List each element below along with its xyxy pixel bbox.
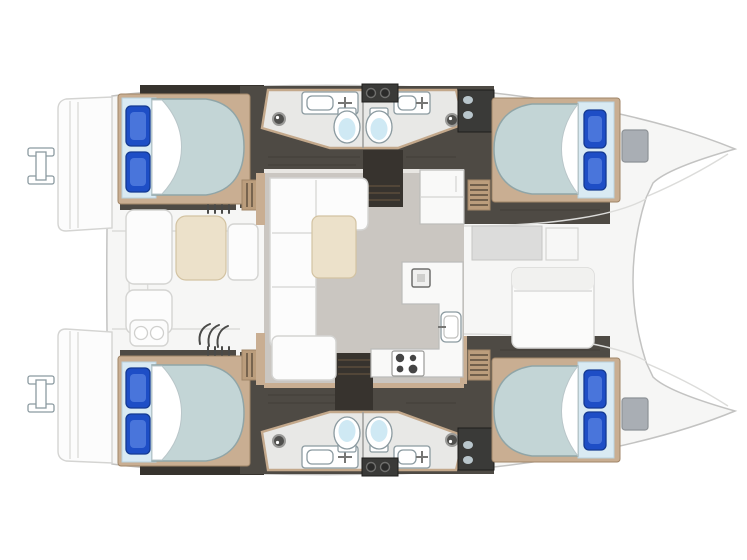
top-forward-toilet-water: [371, 118, 388, 140]
bottom-aft-shower-head: [273, 435, 285, 447]
galley-stove-burner-3: [397, 366, 404, 373]
salon-ottoman: [272, 336, 336, 380]
top-aft-shower-head-dot: [276, 116, 279, 119]
top-bow-storage-hatch: [622, 130, 648, 162]
foredeck-sunpad-backrest: [512, 268, 594, 290]
bottom-aft-shower-head-dot: [276, 441, 279, 444]
bottom-forward-toilet-water: [371, 420, 388, 442]
bottom-aft-cabin-pillow-2-highlight: [130, 374, 146, 402]
bottom-wet-unit-knob-2: [381, 463, 390, 472]
salon-wall-trim-top-left: [256, 173, 265, 225]
salon-coffee-table: [312, 216, 356, 278]
bottom-forward-cabin-pillow-2-highlight: [588, 376, 602, 402]
bottom-wet-unit-knob-1: [367, 463, 376, 472]
bottom-vanity-bowl-1: [463, 456, 473, 464]
bottom-forward-cabin-pillow-1-highlight: [588, 418, 602, 444]
top-aft-shower-head: [273, 113, 285, 125]
bottom-forward-bathroom-sink-basin: [398, 450, 416, 464]
salon-forward-landing: [363, 150, 403, 207]
cockpit-bench-right: [228, 224, 258, 280]
bottom-aft-cabin-pillow-1-highlight: [130, 420, 146, 448]
bottom-vanity-bowl-2: [463, 441, 473, 449]
bottom-forward-shower-head-dot: [449, 440, 452, 443]
top-boarding-ladder-spine: [36, 152, 46, 180]
bottom-forward-cabin: [492, 358, 620, 462]
bottom-vanity-unit: [458, 428, 494, 470]
top-vanity-unit: [458, 90, 494, 132]
galley-stove-burner-4: [409, 365, 418, 374]
foredeck-locker-recess: [472, 226, 542, 260]
top-forward-cabin-pillow-1-highlight: [588, 116, 602, 142]
top-forward-shower-head: [446, 114, 458, 126]
top-stern-swim-platform: [58, 97, 112, 231]
top-forward-bathroom-sink-basin: [398, 96, 416, 110]
top-vanity-bowl-2: [463, 111, 473, 119]
bottom-boarding-ladder-spine: [36, 380, 46, 408]
top-aft-bathroom-sink-basin: [307, 96, 333, 110]
cockpit-table: [176, 216, 226, 280]
catamaran-floor-plan: [0, 0, 747, 560]
bottom-forward-shower-head: [446, 434, 458, 446]
top-wet-unit-knob-1: [367, 89, 376, 98]
top-vanity-bowl-1: [463, 96, 473, 104]
galley-stove-burner-1: [396, 354, 404, 362]
bottom-bow-storage-hatch: [622, 398, 648, 430]
bottom-stern-swim-platform: [58, 329, 112, 463]
top-forward-cabin: [492, 98, 620, 202]
bottom-aft-toilet-water: [339, 420, 356, 442]
cockpit-basin-1: [135, 327, 148, 340]
top-aft-toilet-water: [339, 118, 356, 140]
floor-plan-svg: [0, 0, 747, 560]
galley-stove-burner-2: [410, 355, 416, 361]
bottom-aft-cabin: [118, 356, 250, 466]
galley-counter-appliance-inner: [417, 274, 425, 282]
foredeck-hatch-panel: [546, 228, 578, 260]
top-wet-unit-knob-2: [381, 89, 390, 98]
top-forward-cabin-pillow-2-highlight: [588, 158, 602, 184]
galley-stove: [392, 351, 424, 376]
top-aft-cabin-pillow-2-highlight: [130, 158, 146, 186]
top-aft-cabin: [118, 94, 250, 204]
top-forward-shower-head-dot: [449, 117, 452, 120]
salon-wall-trim-bottom-left: [256, 333, 265, 385]
top-aft-cabin-pillow-1-highlight: [130, 112, 146, 140]
cockpit-bench-left: [126, 210, 172, 284]
bottom-aft-bathroom-sink-basin: [307, 450, 333, 464]
cockpit-basin-2: [151, 327, 164, 340]
salon-aft-landing: [335, 353, 373, 410]
